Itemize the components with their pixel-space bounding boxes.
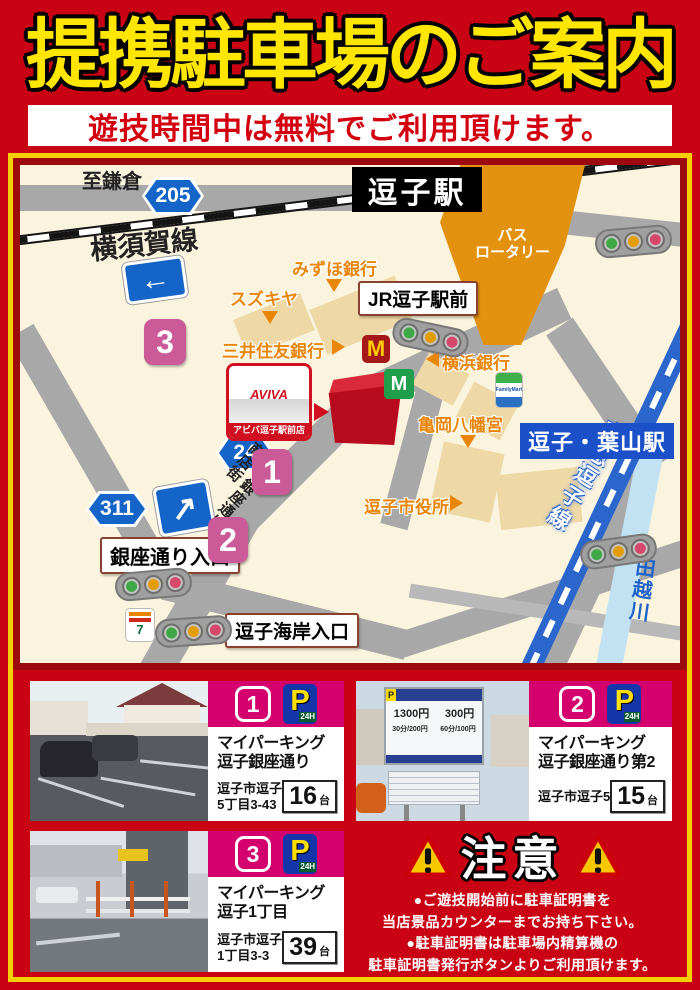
parking-name: マイパーキング 逗子銀座通り第2 (538, 734, 665, 772)
green-lamp (121, 576, 142, 597)
capacity-unit: 台 (319, 792, 330, 808)
aviva-logo: AVIVA (250, 387, 288, 402)
familymart-icon: FamilyMart (496, 373, 522, 407)
smbc-pointer-icon (332, 339, 345, 355)
traffic-light (154, 614, 233, 648)
photo-pole (460, 805, 465, 821)
capacity-box: 15 台 (610, 780, 665, 813)
parking-header-3: 3 P 24H (208, 831, 344, 877)
mcdonalds-m: M (367, 336, 385, 362)
familymart-name: FamilyMart (496, 383, 522, 397)
bus-rotary-line1: バス (475, 227, 550, 244)
parking-card-3: 3 P 24H マイパーキング 逗子1丁目 逗子市逗子 1丁目3-3 (30, 831, 344, 972)
hours-24h: 24H (624, 712, 641, 722)
photo-building (491, 715, 529, 767)
photo-car (36, 887, 78, 903)
parking-name: マイパーキング 逗子1丁目 (217, 884, 337, 922)
photo-houses (30, 845, 122, 877)
sign-rates: 30分/200円 60分/100円 (386, 724, 482, 734)
sign-rate-day: 30分/200円 (392, 724, 427, 734)
sign-price-day: 1300円 (394, 705, 429, 721)
yellow-lamp (608, 541, 629, 562)
sign-prices: 1300円 300円 (386, 705, 482, 721)
warning-triangle-icon (575, 835, 621, 877)
parking-24h-icon: P 24H (283, 834, 317, 874)
city-hall-pointer-icon (450, 495, 463, 511)
bus-rotary-line2: ロータリー (475, 244, 550, 261)
photo-rules-board (388, 771, 480, 805)
seven-eleven-icon: 7 (126, 609, 154, 641)
to-kamakura-label: 至鎌倉 (82, 165, 142, 194)
map-marker-2: 2 (208, 517, 248, 563)
parking-number-badge: 1 (235, 686, 271, 722)
photo-car (92, 735, 138, 761)
parking-address-line2: 5丁目3-43 (217, 797, 282, 813)
yellow-lamp (143, 574, 164, 595)
parking-photo-3 (30, 831, 208, 972)
parking-photo-1 (30, 681, 208, 821)
map-marker-3: 3 (144, 319, 186, 365)
parking-name-line2: 逗子銀座通り第2 (538, 753, 665, 772)
parking-address-line1: 逗子市逗子 (217, 781, 282, 797)
photo-yellow-sign (118, 849, 148, 861)
arrow-sign-left: ← (121, 255, 188, 305)
photo-car (40, 741, 98, 777)
red-lamp (205, 620, 225, 640)
aviva-pointer-icon (314, 403, 329, 421)
parking-info-1: 1 P 24H マイパーキング 逗子銀座通り 逗子市逗子 5丁目3-43 (208, 681, 344, 821)
photo-orange-post (96, 881, 100, 917)
yellow-lamp (419, 326, 442, 349)
parking-header-1: 1 P 24H (208, 681, 344, 727)
photo-fence-rail (86, 909, 190, 913)
aviva-store-name: アビバ逗子駅前店 (229, 423, 309, 438)
capacity-number: 16 (289, 782, 317, 811)
route-sign-311: 311 (86, 491, 148, 527)
suzukiya-label: スズキヤ (230, 285, 298, 310)
red-lamp (441, 331, 464, 354)
map-marker-2-number: 2 (219, 522, 237, 559)
hours-24h: 24H (299, 862, 316, 872)
smbc-label: 三井住友銀行 (222, 337, 324, 362)
route-sign-205: 205 (142, 177, 204, 215)
page-title: 提携駐車場のご案内 (0, 10, 700, 101)
parking-number-badge: 3 (235, 836, 271, 872)
parking-name-line2: 逗子1丁目 (217, 903, 337, 922)
route-205-number: 205 (155, 184, 190, 208)
red-lamp (165, 572, 186, 593)
photo-car (356, 783, 386, 813)
kameoka-pointer-icon (460, 435, 476, 448)
city-hall-label: 逗子市役所 (364, 493, 449, 518)
parking-photo-2: P 1300円 300円 30分/200円 60分/100円 (356, 681, 529, 821)
parking-24h-icon: P 24H (283, 684, 317, 724)
map-marker-1: 1 (252, 449, 292, 495)
red-lamp (630, 538, 651, 559)
parking-body-1: マイパーキング 逗子銀座通り 逗子市逗子 5丁目3-43 16 台 (208, 727, 344, 821)
parking-address: 逗子市逗子 1丁目3-3 (217, 932, 282, 963)
photo-orange-post (164, 881, 168, 917)
sign-rate-night: 60分/100円 (440, 724, 475, 734)
notice-line-2: 当店景品カウンターまでお持ち下さい。 (350, 912, 675, 934)
capacity-number: 15 (617, 782, 645, 811)
parking-name-line1: マイパーキング (217, 884, 337, 903)
hours-24h: 24H (299, 712, 316, 722)
notice-line-4: 駐車証明書発行ボタンよりご利用頂けます。 (350, 955, 675, 977)
left-arrow-icon: ← (138, 261, 172, 299)
sign-p-icon: P (386, 689, 396, 701)
sign-price-night: 300円 (445, 705, 474, 721)
parking-address-line1: 逗子市逗子5 (538, 789, 610, 805)
green-lamp (601, 233, 622, 254)
notice-line-1: ●ご遊技開始前に駐車証明書を (350, 890, 675, 912)
seven-orange-stripe (129, 612, 151, 616)
mcdonalds-icon: M (362, 335, 390, 363)
zushi-hayama-station-box: 逗子・葉山駅 (520, 423, 674, 459)
familymart-green-stripe (496, 373, 522, 383)
sign-header: P (386, 689, 482, 701)
notice-line-3: ●駐車証明書は駐車場内精算機の (350, 933, 675, 955)
bus-rotary-label: バス ロータリー (475, 227, 550, 262)
parking-address-row: 逗子市逗子 5丁目3-43 16 台 (217, 780, 337, 813)
notice-title: 注意 (461, 823, 565, 889)
mizuho-pointer-icon (326, 279, 342, 292)
green-lamp (398, 322, 421, 345)
parking-name-line1: マイパーキング (538, 734, 665, 753)
area-map: バス ロータリー 逗子駅 逗子・葉山駅 至鎌倉 横須賀線 205 24 311 (13, 158, 687, 670)
familymart-blue-stripe (496, 397, 522, 407)
notice-lines: ●ご遊技開始前に駐車証明書を 当店景品カウンターまでお持ち下さい。 ●駐車証明書… (350, 890, 675, 977)
map-marker-3-number: 3 (156, 324, 174, 361)
parking-name-line1: マイパーキング (217, 734, 337, 753)
zushi-station-label: 逗子駅 (368, 168, 467, 212)
parking-info-3: 3 P 24H マイパーキング 逗子1丁目 逗子市逗子 1丁目3-3 (208, 831, 344, 972)
green-lamp (586, 544, 607, 565)
map-marker-1-number: 1 (263, 454, 281, 491)
photo-parking-line (36, 933, 120, 946)
flyer-page: 提携駐車場のご案内 遊技時間中は無料でご利用頂けます。 バス ロータリー (0, 0, 700, 990)
photo-parking-line (38, 777, 125, 808)
parking-name: マイパーキング 逗子銀座通り (217, 734, 337, 772)
photo-pole (404, 805, 409, 821)
route-sign-205-inner: 205 (145, 180, 201, 212)
suzukiya-pointer-icon (262, 311, 278, 324)
parking-address-line2: 1丁目3-3 (217, 948, 282, 964)
yellow-lamp (623, 231, 644, 252)
sign-blue-bar (386, 755, 482, 763)
capacity-box: 39 台 (282, 931, 337, 964)
zushi-station-box: 逗子駅 (352, 167, 482, 212)
mizuho-bank-label: みずほ銀行 (292, 255, 377, 280)
capacity-box: 16 台 (282, 780, 337, 813)
notice-section: 注意 ●ご遊技開始前に駐車証明書を 当店景品カウンターまでお持ち下さい。 ●駐車… (350, 828, 675, 974)
parking-info-2: 2 P 24H マイパーキング 逗子銀座通り第2 逗子市逗子5 15 (529, 681, 672, 821)
notice-title-row: 注意 (350, 828, 675, 884)
photo-price-sign: P 1300円 300円 30分/200円 60分/100円 (384, 687, 484, 765)
kaigan-entrance-label: 逗子海岸入口 (225, 613, 359, 648)
mos-m: M (391, 373, 408, 396)
red-lamp (645, 229, 666, 250)
parking-body-3: マイパーキング 逗子1丁目 逗子市逗子 1丁目3-3 39 台 (208, 877, 344, 972)
parking-address-line1: 逗子市逗子 (217, 932, 282, 948)
parking-card-2: P 1300円 300円 30分/200円 60分/100円 2 P (356, 681, 672, 821)
capacity-number: 39 (289, 933, 317, 962)
route-311-number: 311 (100, 497, 134, 521)
green-lamp (161, 623, 181, 643)
parking-number-badge: 2 (559, 686, 595, 722)
subtitle-banner: 遊技時間中は無料でご利用頂けます。 (28, 105, 672, 146)
parking-header-2: 2 P 24H (529, 681, 672, 727)
warning-triangle-icon (405, 835, 451, 877)
parking-address-row: 逗子市逗子5 15 台 (538, 780, 665, 813)
parking-address: 逗子市逗子 5丁目3-43 (217, 781, 282, 812)
photo-parking-line (140, 759, 208, 769)
capacity-unit: 台 (647, 792, 658, 808)
jr-zushi-ekimae-label: JR逗子駅前 (358, 281, 478, 316)
photo-building (30, 701, 88, 735)
photo-fence-rail (86, 897, 190, 901)
seven-number: 7 (136, 622, 143, 638)
zushi-hayama-station-label: 逗子・葉山駅 (528, 425, 666, 457)
yellow-lamp (183, 621, 203, 641)
traffic-light (594, 224, 673, 260)
photo-roof (116, 683, 208, 707)
aviva-store-callout: AVIVA アビバ逗子駅前店 (226, 363, 312, 441)
photo-orange-post (130, 881, 134, 917)
parking-name-line2: 逗子銀座通り (217, 753, 337, 772)
route-sign-311-inner: 311 (89, 494, 145, 524)
photo-parking-line (100, 777, 195, 797)
kameoka-shrine-label: 亀岡八幡宮 (418, 411, 503, 436)
photo-building (356, 709, 386, 765)
parking-body-2: マイパーキング 逗子銀座通り第2 逗子市逗子5 15 台 (529, 727, 672, 821)
aviva-store-photo: AVIVA (229, 366, 309, 423)
mos-burger-icon: M (384, 369, 414, 399)
parking-address: 逗子市逗子5 (538, 789, 610, 805)
parking-address-row: 逗子市逗子 1丁目3-3 39 台 (217, 931, 337, 964)
capacity-unit: 台 (319, 943, 330, 959)
parking-24h-icon: P 24H (607, 684, 641, 724)
parking-card-1: 1 P 24H マイパーキング 逗子銀座通り 逗子市逗子 5丁目3-43 (30, 681, 344, 821)
